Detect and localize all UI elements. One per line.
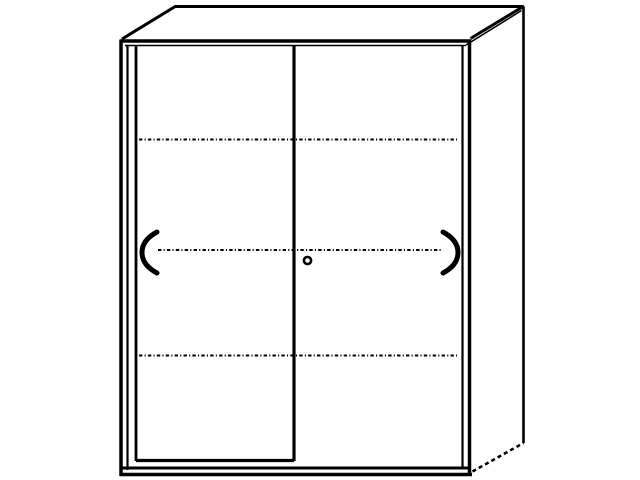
top-right-slant-inner-edge [466,11,522,46]
right-door-handle [443,232,458,273]
lock-cylinder [304,257,311,264]
top-right-slant-outer-edge [471,6,525,39]
side-bottom-slant-edge [473,443,524,472]
cabinet-line-drawing [0,0,640,480]
top-left-slant-edge [122,6,176,39]
left-door-handle [142,232,157,273]
drawing-canvas [0,0,640,480]
